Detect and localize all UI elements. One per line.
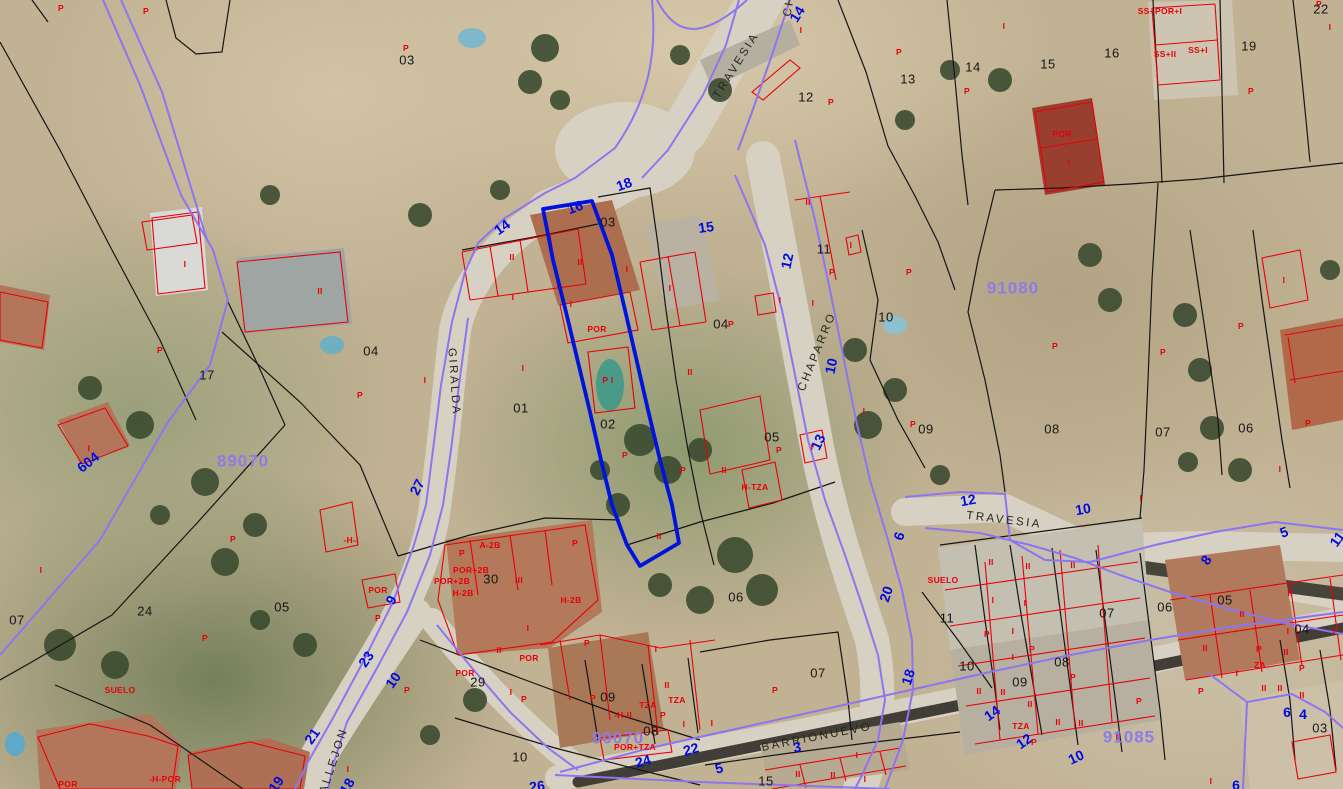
cadastral-map-canvas[interactable]: 0312131415161922031104101704010205090807…: [0, 0, 1343, 789]
building-code-label: II: [1078, 719, 1083, 728]
parcel-number-label: 09: [600, 691, 615, 704]
building-code-label: POR: [587, 325, 606, 334]
building-code-label: P: [357, 391, 363, 400]
building-code-label: I: [850, 241, 853, 250]
building-code-label: II: [1027, 700, 1032, 709]
parcel-number-label: 05: [274, 601, 289, 614]
building-code-label: SS+POR+I: [1138, 7, 1182, 16]
building-code-label: I: [1236, 669, 1239, 678]
parcel-number-label: 15: [758, 775, 773, 788]
parcel-number-label: 12: [798, 91, 813, 104]
building-code-label: P: [1248, 87, 1254, 96]
building-code-label: I: [40, 566, 43, 575]
building-code-label: POR: [455, 669, 474, 678]
building-code-label: P: [143, 7, 149, 16]
building-code-label: II: [664, 681, 669, 690]
street-number-label: 5: [713, 760, 724, 776]
building-code-label: II: [805, 198, 810, 207]
building-code-label: I: [1012, 627, 1015, 636]
building-code-label: SUELO: [105, 686, 136, 695]
building-code-label: P: [896, 48, 902, 57]
street-name-label: GIRALDA: [445, 348, 461, 417]
street-number-label: 6: [891, 530, 907, 542]
parcel-number-label: 13: [900, 73, 915, 86]
parcel-number-label: 06: [728, 591, 743, 604]
building-code-label: TZA: [639, 701, 656, 710]
street-number-label: 10: [823, 357, 840, 375]
building-code-label: H-TZA: [742, 483, 769, 492]
building-code-label: II: [317, 287, 322, 296]
parcel-number-label: 09: [1012, 676, 1027, 689]
parcel-number-label: 04: [1294, 623, 1309, 636]
street-number-label: 12: [959, 492, 977, 508]
building-code-label: P: [910, 420, 916, 429]
building-code-label: I: [655, 645, 658, 654]
street-number-label: 18: [614, 175, 633, 193]
building-code-label: II: [1287, 589, 1292, 598]
building-code-label: POR+TZA: [614, 743, 656, 752]
building-code-label: I: [711, 719, 714, 728]
building-code-label: I: [1116, 733, 1119, 742]
building-code-label: P: [1031, 738, 1037, 747]
parcel-number-label: 06: [1157, 601, 1172, 614]
building-code-label: H-2B: [452, 589, 473, 598]
building-code-label: II: [1277, 684, 1282, 693]
building-code-label: I: [522, 364, 525, 373]
building-code-label: I: [1333, 627, 1336, 636]
parcel-number-label: 05: [764, 431, 779, 444]
building-code-label: II: [1025, 562, 1030, 571]
parcel-number-label: 04: [713, 318, 728, 331]
building-code-label: P: [776, 446, 782, 455]
street-number-label: 26: [528, 778, 545, 789]
building-code-label: P: [1305, 419, 1311, 428]
street-number-label: 20: [877, 584, 895, 603]
building-code-label: P: [375, 614, 381, 623]
building-code-label: I: [1283, 276, 1286, 285]
parcel-number-label: 15: [1040, 58, 1055, 71]
building-code-label: ZA: [1254, 661, 1266, 670]
parcel-number-label: 17: [199, 369, 214, 382]
building-code-label: III: [515, 576, 523, 585]
building-code-label: P: [1029, 645, 1035, 654]
building-code-label: II: [1239, 610, 1244, 619]
building-code-label: II: [1261, 684, 1266, 693]
building-code-label: II: [976, 687, 981, 696]
building-code-label: P: [1256, 645, 1262, 654]
building-code-label: P: [58, 4, 64, 13]
building-code-label: I: [512, 293, 515, 302]
building-code-label: P: [572, 539, 578, 548]
building-code-label: I: [527, 624, 530, 633]
parcel-number-label: 02: [600, 418, 615, 431]
street-name-label: TRAVESIA: [712, 31, 762, 102]
building-code-label: P: [828, 98, 834, 107]
building-code-label: II: [830, 771, 835, 780]
building-code-label: I: [1287, 627, 1290, 636]
building-code-label: II: [1000, 688, 1005, 697]
building-code-label: POR: [1052, 130, 1071, 139]
street-number-label: 10: [1074, 501, 1092, 517]
parcel-number-label: 24: [137, 605, 152, 618]
street-name-label: CHAPARRO: [797, 311, 839, 393]
street-number-label: 14: [982, 703, 1003, 723]
building-code-label: P: [984, 630, 990, 639]
building-code-label: I: [1059, 604, 1062, 613]
parcel-number-label: 08: [1044, 423, 1059, 436]
street-number-label: 22: [682, 740, 701, 758]
street-number-label: 16: [565, 198, 584, 216]
map-text-labels: 0312131415161922031104101704010205090807…: [0, 0, 1343, 789]
building-code-label: I: [88, 444, 91, 453]
street-number-label: 6: [1283, 705, 1291, 719]
building-code-label: P: [1052, 342, 1058, 351]
building-code-label: II: [988, 558, 993, 567]
building-code-label: H-2B: [560, 596, 581, 605]
building-code-label: II: [509, 253, 514, 262]
street-number-label: 10: [383, 670, 403, 691]
street-number-label: 8: [1198, 553, 1214, 567]
building-code-label: P: [1238, 322, 1244, 331]
building-code-label: II: [1299, 691, 1304, 700]
building-code-label: P: [660, 711, 666, 720]
building-code-label: II: [795, 770, 800, 779]
building-code-label: I: [1068, 159, 1071, 168]
building-code-label: I: [683, 720, 686, 729]
street-number-label: 18: [337, 776, 357, 789]
building-code-label: I: [1003, 22, 1006, 31]
building-code-label: I: [812, 299, 815, 308]
building-code-label: II: [1202, 644, 1207, 653]
building-code-label: -H-II: [614, 711, 632, 720]
parcel-number-label: 01: [513, 402, 528, 415]
parcel-number-label: 03: [399, 54, 414, 67]
parcel-number-label: 03: [600, 216, 615, 229]
street-number-label: 12: [779, 252, 796, 270]
building-code-label: I: [184, 260, 187, 269]
building-code-label: P: [728, 320, 734, 329]
building-code-label: P: [1160, 348, 1166, 357]
street-number-label: 19: [266, 774, 286, 789]
building-code-label: P I: [602, 376, 613, 385]
building-code-label: P: [1316, 0, 1322, 8]
parcel-number-label: 14: [965, 61, 980, 74]
building-code-label: I: [510, 688, 513, 697]
building-code-label: I: [1140, 494, 1143, 503]
block-number-label: 91085: [1103, 729, 1155, 746]
parcel-number-label: 07: [1099, 607, 1114, 620]
building-code-label: II: [1283, 648, 1288, 657]
building-code-label: -H-I: [343, 536, 358, 545]
building-code-label: P: [906, 268, 912, 277]
building-code-label: II: [496, 646, 501, 655]
building-code-label: I: [424, 376, 427, 385]
building-code-label: I: [1279, 465, 1282, 474]
building-code-label: POR: [58, 780, 77, 789]
building-code-label: TZA: [668, 696, 685, 705]
building-code-label: I: [570, 300, 573, 309]
building-code-label: P: [680, 466, 686, 475]
parcel-number-label: 05: [1217, 594, 1232, 607]
building-code-label: I: [856, 751, 859, 760]
building-code-label: POR+2B: [453, 566, 489, 575]
building-code-label: P: [584, 639, 590, 648]
parcel-number-label: 07: [1155, 426, 1170, 439]
street-number-label: 4: [1299, 707, 1307, 721]
parcel-number-label: 10: [512, 751, 527, 764]
street-number-label: 10: [1066, 747, 1086, 766]
parcel-number-label: 11: [940, 612, 955, 625]
street-number-label: 11: [1327, 529, 1343, 549]
parcel-number-label: 08: [643, 725, 658, 738]
street-number-label: 24: [634, 752, 653, 770]
building-code-label: POR: [519, 654, 538, 663]
building-code-label: P: [590, 694, 596, 703]
building-code-label: POR: [368, 586, 387, 595]
parcel-number-label: 16: [1104, 47, 1119, 60]
building-code-label: P: [829, 268, 835, 277]
parcel-number-label: 06: [1238, 422, 1253, 435]
building-code-label: POR+2B: [434, 577, 470, 586]
building-code-label: SS+I: [1188, 46, 1208, 55]
building-code-label: P: [622, 451, 628, 460]
building-code-label: P: [404, 686, 410, 695]
building-code-label: P: [964, 87, 970, 96]
building-code-label: I: [800, 26, 803, 35]
building-code-label: P: [521, 695, 527, 704]
parcel-number-label: 19: [1241, 40, 1256, 53]
building-code-label: P: [230, 535, 236, 544]
building-code-label: I: [811, 443, 814, 452]
block-number-label: 89070: [217, 453, 269, 470]
building-code-label: I: [669, 284, 672, 293]
building-code-label: P: [157, 346, 163, 355]
building-code-label: I: [992, 596, 995, 605]
parcel-number-label: 11: [817, 243, 832, 256]
street-name-label: TRAVESIA: [966, 511, 1043, 532]
street-number-label: 6: [1232, 778, 1240, 789]
building-code-label: I: [347, 765, 350, 774]
building-code-label: P: [1198, 687, 1204, 696]
parcel-number-label: 10: [878, 311, 893, 324]
parcel-number-label: 10: [959, 660, 974, 673]
building-code-label: II: [687, 368, 692, 377]
building-code-label: I: [779, 296, 782, 305]
street-number-label: 604: [74, 449, 101, 474]
parcel-number-label: 04: [363, 345, 378, 358]
building-code-label: A-2B: [479, 541, 500, 550]
street-number-label: 5: [1278, 524, 1290, 540]
building-code-label: I: [1012, 653, 1015, 662]
building-code-label: P: [772, 686, 778, 695]
parcel-number-label: 07: [810, 667, 825, 680]
street-number-label: 23: [356, 649, 376, 670]
building-code-label: I: [1329, 23, 1332, 32]
building-code-label: P: [1070, 673, 1076, 682]
street-number-label: 21: [302, 726, 322, 747]
building-code-label: P: [202, 634, 208, 643]
building-code-label: I: [1210, 777, 1213, 786]
building-code-label: II: [721, 466, 726, 475]
street-number-label: 27: [407, 477, 427, 497]
building-code-label: I: [864, 775, 867, 784]
street-number-label: 9: [383, 593, 399, 606]
parcel-number-label: 08: [1054, 656, 1069, 669]
parcel-number-label: 09: [918, 423, 933, 436]
building-code-label: P: [1299, 664, 1305, 673]
building-code-label: P: [1136, 697, 1142, 706]
building-code-label: I: [863, 407, 866, 416]
building-code-label: TZA: [1012, 722, 1029, 731]
building-code-label: II: [1070, 561, 1075, 570]
parcel-number-label: 07: [9, 614, 24, 627]
building-code-label: II: [656, 532, 661, 541]
building-code-label: I: [1024, 599, 1027, 608]
building-code-label: P: [403, 44, 409, 53]
building-code-label: II: [577, 258, 582, 267]
building-code-label: P: [459, 549, 465, 558]
building-code-label: II: [1055, 718, 1060, 727]
building-code-label: -H-POR: [149, 775, 181, 784]
street-number-label: 14: [492, 217, 513, 237]
building-code-label: I: [626, 265, 629, 274]
block-number-label: 91080: [987, 280, 1039, 297]
building-code-label: SS+II: [1154, 50, 1177, 59]
building-code-label: SUELO: [928, 576, 959, 585]
street-number-label: 15: [697, 219, 714, 235]
parcel-number-label: 03: [1312, 722, 1327, 735]
street-number-label: 18: [899, 667, 917, 686]
